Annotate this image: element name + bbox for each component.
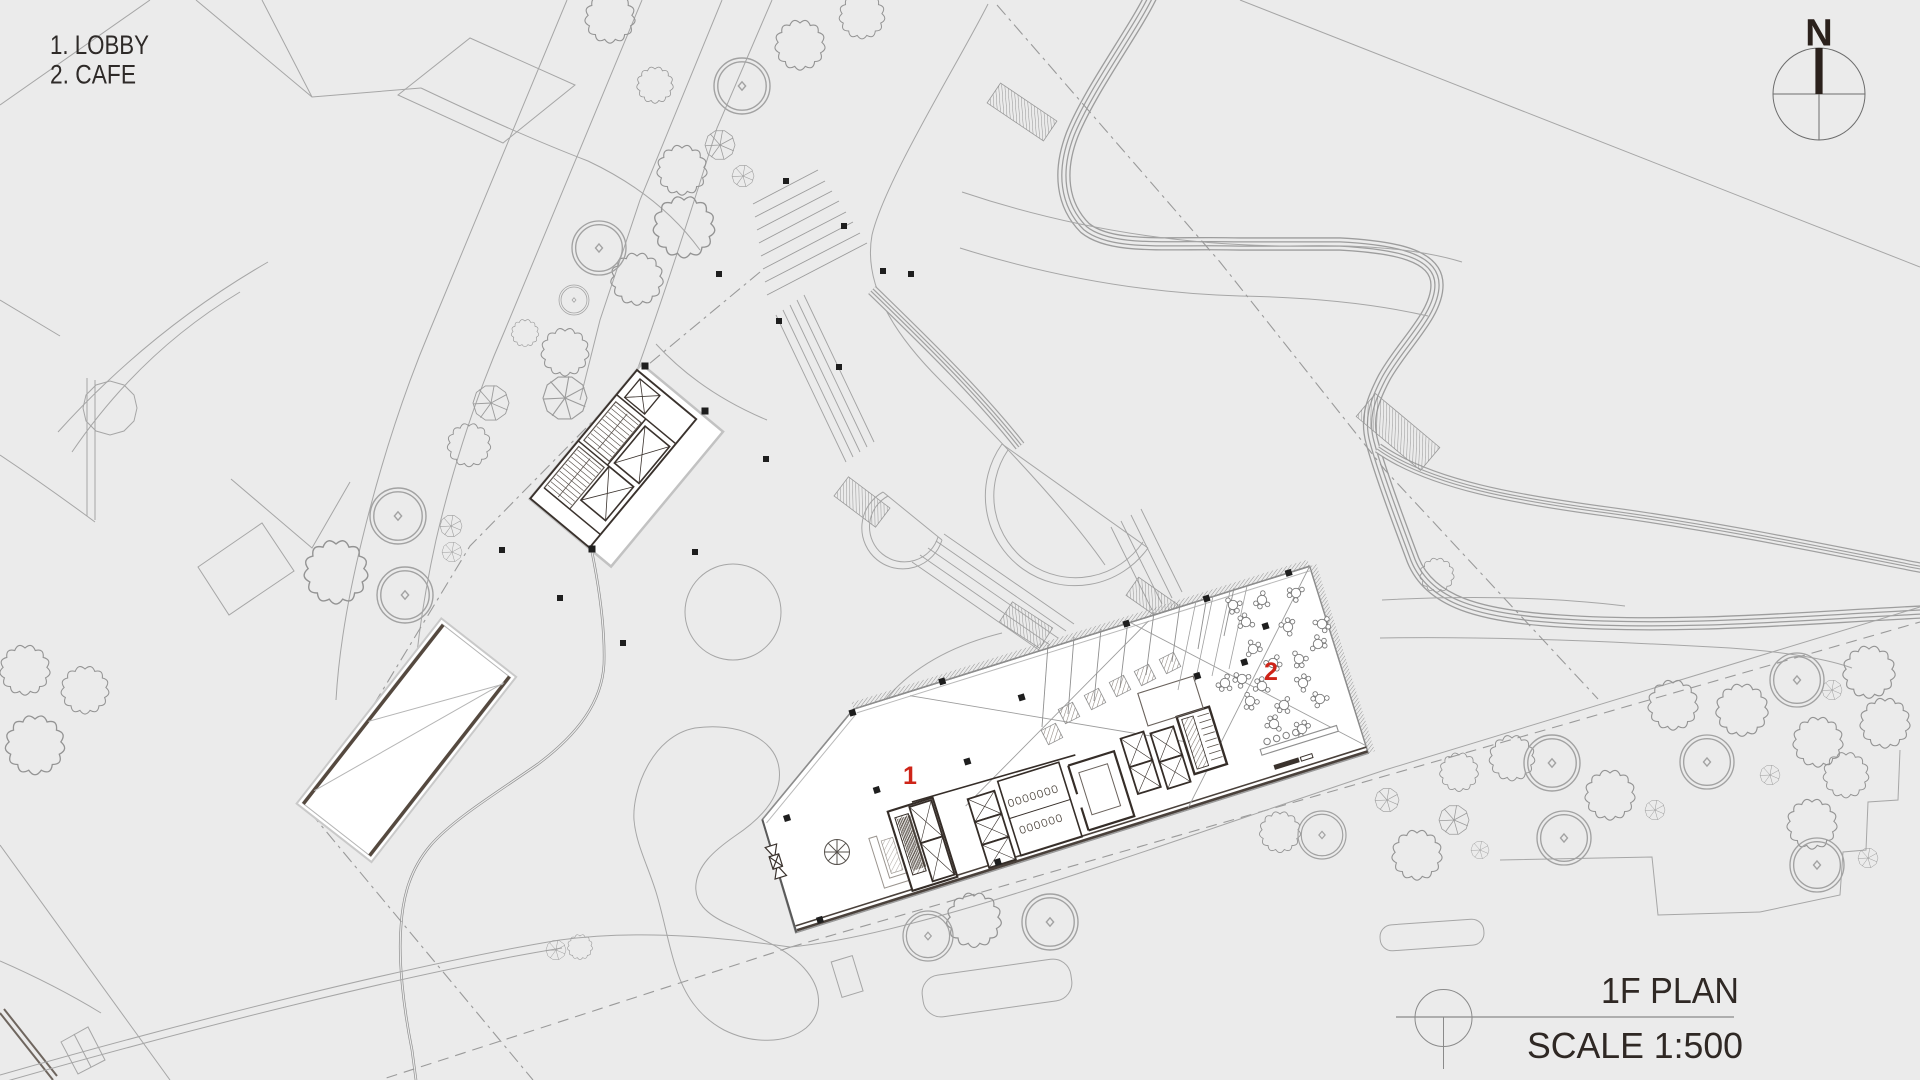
svg-text:N: N <box>1805 13 1832 55</box>
svg-text:2: 2 <box>1264 658 1278 686</box>
svg-text:1F PLAN: 1F PLAN <box>1601 970 1739 1011</box>
svg-text:SCALE 1:500: SCALE 1:500 <box>1527 1025 1743 1066</box>
svg-text:1. LOBBY: 1. LOBBY <box>50 30 149 60</box>
svg-text:2. CAFE: 2. CAFE <box>50 59 136 89</box>
svg-text:1: 1 <box>903 762 917 790</box>
